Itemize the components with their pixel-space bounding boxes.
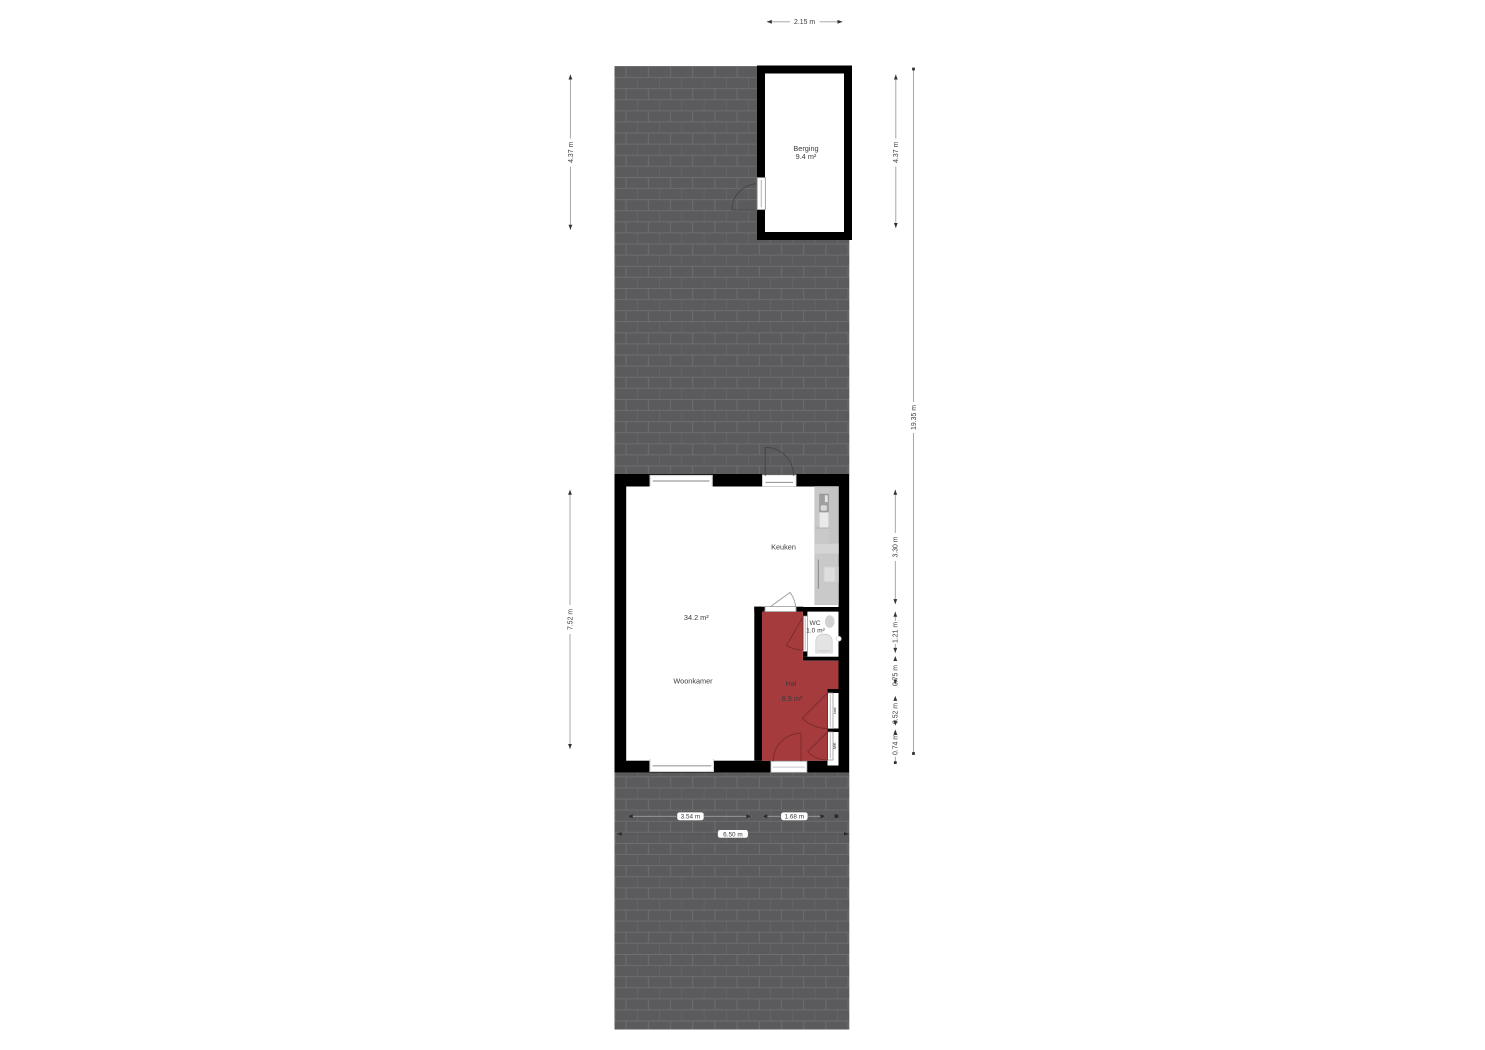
svg-text:Woonkamer: Woonkamer bbox=[673, 677, 713, 686]
svg-text:1.21 m: 1.21 m bbox=[893, 622, 900, 643]
svg-text:9.4 m²: 9.4 m² bbox=[796, 152, 817, 161]
svg-text:19.35 m: 19.35 m bbox=[911, 405, 918, 430]
svg-text:0.74 m: 0.74 m bbox=[893, 734, 900, 755]
svg-text:1.68 m: 1.68 m bbox=[785, 814, 805, 821]
svg-text:MK: MK bbox=[832, 741, 837, 749]
svg-text:2.15 m: 2.15 m bbox=[794, 19, 815, 26]
svg-text:34.2 m²: 34.2 m² bbox=[684, 613, 709, 622]
svg-text:7.52 m: 7.52 m bbox=[567, 609, 574, 630]
svg-text:Hal: Hal bbox=[786, 679, 797, 688]
svg-text:4.37 m: 4.37 m bbox=[568, 142, 575, 163]
svg-text:kast: kast bbox=[833, 708, 837, 715]
svg-text:6.9 m²: 6.9 m² bbox=[782, 694, 803, 703]
svg-text:4.37 m: 4.37 m bbox=[893, 142, 900, 163]
svg-text:0.52 m: 0.52 m bbox=[893, 703, 900, 724]
svg-text:3.30 m: 3.30 m bbox=[893, 536, 900, 557]
svg-text:1.0 m²: 1.0 m² bbox=[806, 627, 825, 634]
svg-text:Keuken: Keuken bbox=[771, 542, 796, 551]
svg-text:3.54 m: 3.54 m bbox=[681, 814, 701, 821]
svg-text:0.75 m: 0.75 m bbox=[893, 665, 900, 686]
svg-text:6.50 m: 6.50 m bbox=[723, 831, 743, 838]
svg-text:WC: WC bbox=[810, 620, 821, 627]
